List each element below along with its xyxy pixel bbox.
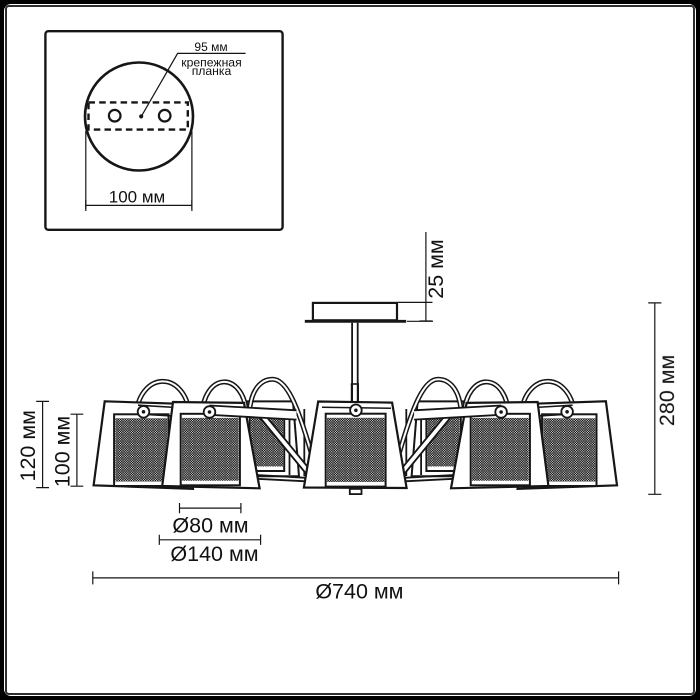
svg-text:Ø740 мм: Ø740 мм <box>315 579 403 603</box>
svg-text:планка: планка <box>192 64 232 78</box>
svg-text:Ø140 мм: Ø140 мм <box>170 542 258 566</box>
svg-text:25 мм: 25 мм <box>424 239 448 298</box>
svg-text:100 мм: 100 мм <box>50 416 74 487</box>
svg-text:280 мм: 280 мм <box>655 355 679 426</box>
svg-text:120 мм: 120 мм <box>16 410 40 481</box>
svg-text:100 мм: 100 мм <box>109 187 165 206</box>
svg-text:95 мм: 95 мм <box>194 40 227 54</box>
svg-text:Ø80 мм: Ø80 мм <box>172 513 248 537</box>
